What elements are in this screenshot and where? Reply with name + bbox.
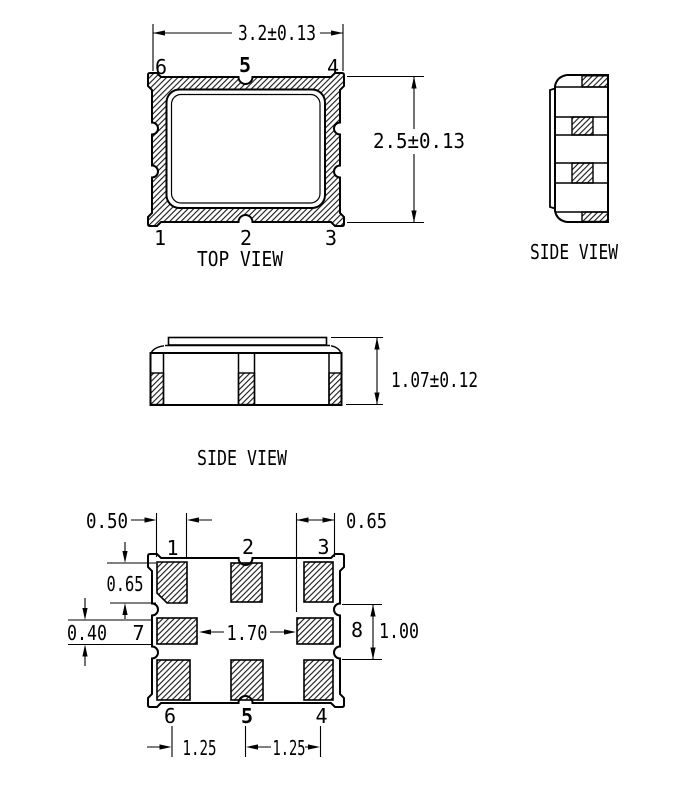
top-view-width-dim-text: 3.2±0.13 — [238, 21, 316, 45]
side-view-front-label: SIDE VIEW — [197, 446, 288, 470]
pad-7 — [157, 618, 197, 644]
package-drawing: 3.2±0.13 2.5±0.13 6 5 4 1 2 3 TOP VIEW S… — [0, 0, 690, 797]
dim-pad-width-text: 0.50 — [86, 509, 128, 533]
pad-1 — [157, 562, 187, 603]
pad-8 — [297, 618, 333, 644]
dim-pitch-left-text: 1.25 — [183, 736, 217, 760]
front-pad-left — [151, 373, 164, 405]
top-view-pin-4: 4 — [327, 55, 339, 79]
side-right-pad-bottom — [582, 212, 608, 222]
top-view-height-dimension: 2.5±0.13 — [347, 77, 465, 223]
top-view-label: TOP VIEW — [197, 247, 284, 271]
bottom-pin-2: 2 — [242, 535, 254, 559]
dim-pad1-height-text: 0.65 — [107, 572, 144, 596]
top-view: 3.2±0.13 2.5±0.13 6 5 4 1 2 3 TOP VIEW — [148, 21, 465, 271]
side-right-pad-mid-upper — [572, 117, 593, 135]
bottom-pin-1: 1 — [166, 536, 178, 560]
bottom-pin-6: 6 — [164, 704, 176, 728]
top-view-pin-1: 1 — [154, 226, 166, 250]
bottom-pin-3: 3 — [317, 535, 329, 559]
pad-2 — [231, 563, 262, 602]
side-right-pad-top — [582, 76, 608, 87]
drawing-svg: 3.2±0.13 2.5±0.13 6 5 4 1 2 3 TOP VIEW S… — [0, 0, 690, 797]
front-pad-center — [239, 373, 255, 405]
dim-mid-height-text: 1.00 — [379, 619, 419, 643]
side-right-body — [555, 75, 608, 222]
side-view-right-label: SIDE VIEW — [530, 240, 619, 264]
front-height-dimension: 1.07±0.12 — [331, 338, 478, 405]
pad-4 — [304, 660, 333, 700]
dim-pitch: 1.25 1.25 — [147, 726, 321, 760]
dim-corner-pad-text: 0.65 — [346, 509, 387, 533]
side-right-pad-mid-lower — [572, 163, 593, 183]
bottom-pin-8: 8 — [351, 618, 363, 642]
top-view-height-dim-text: 2.5±0.13 — [373, 129, 465, 153]
bottom-pin-4: 4 — [315, 704, 327, 728]
pad-3 — [304, 562, 333, 602]
front-height-dim-text: 1.07±0.12 — [391, 368, 478, 392]
front-pad-right — [329, 373, 342, 405]
dim-pitch-right-text: 1.25 — [273, 736, 306, 760]
dim-pad-width: 0.50 — [86, 509, 212, 559]
top-view-pin-5: 5 — [239, 53, 251, 77]
pad-6 — [157, 660, 190, 700]
side-view-right: SIDE VIEW — [530, 75, 619, 264]
top-view-cavity-outer — [167, 90, 326, 209]
dim-center-gap-text: 1.70 — [227, 621, 268, 645]
bottom-pin-7: 7 — [132, 621, 144, 645]
top-view-pin-6: 6 — [155, 55, 167, 79]
side-view-front: 1.07±0.12 SIDE VIEW — [151, 338, 479, 471]
top-view-pin-3: 3 — [325, 226, 337, 250]
front-lid — [169, 338, 327, 346]
bottom-view: 0.50 0.65 0.65 0.40 1.70 — [67, 509, 419, 760]
bottom-pin-5: 5 — [241, 704, 253, 728]
dim-pad7-height-text: 0.40 — [67, 621, 107, 645]
pad-5 — [231, 660, 263, 700]
